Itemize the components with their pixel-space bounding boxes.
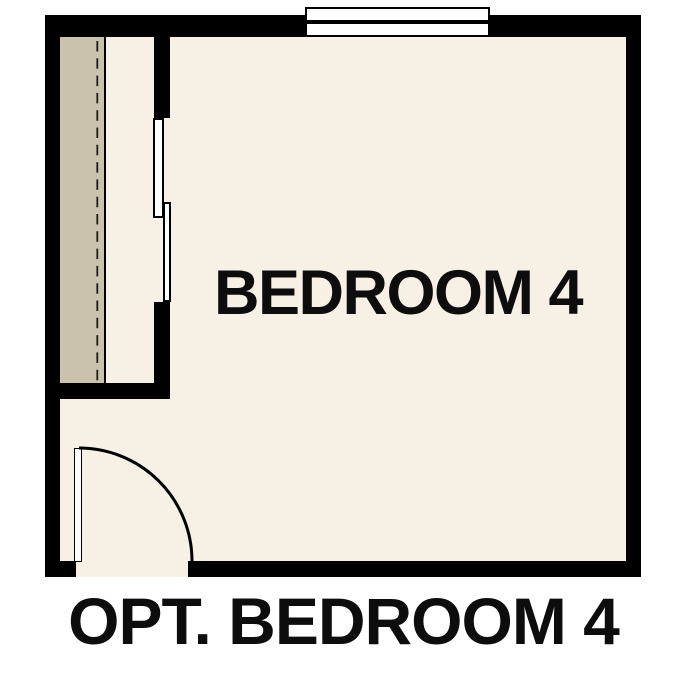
interior-wall-upper-segment	[154, 37, 171, 118]
plan-caption: OPT. BEDROOM 4	[0, 588, 687, 654]
interior-wall-lower-segment	[154, 302, 171, 399]
top-window-icon	[305, 7, 490, 37]
door-panel-icon	[74, 448, 82, 562]
closet-floor	[60, 37, 104, 383]
closet-edge-line	[104, 37, 107, 383]
floorplan-canvas: BEDROOM 4 OPT. BEDROOM 4	[0, 0, 687, 687]
door-opening	[76, 561, 188, 577]
closet-bottom-wall	[45, 383, 170, 399]
room-label: BEDROOM 4	[170, 262, 626, 325]
top-window-divider	[307, 20, 488, 25]
